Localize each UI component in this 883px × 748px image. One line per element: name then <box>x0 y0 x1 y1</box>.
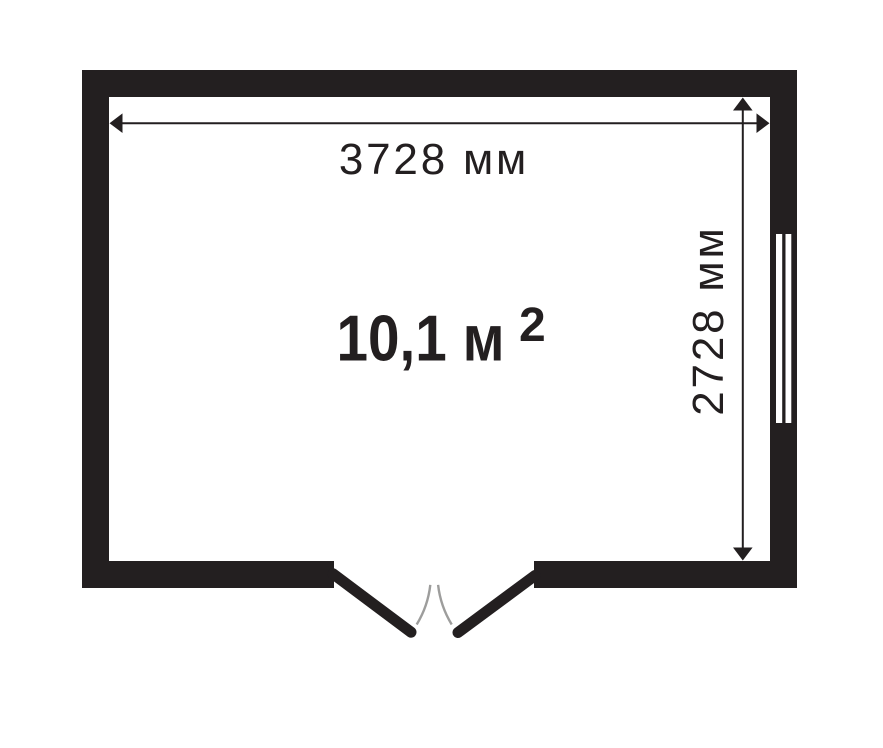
svg-text:2: 2 <box>519 299 546 352</box>
svg-text:2728 мм: 2728 мм <box>684 225 733 415</box>
svg-text:3728 мм: 3728 мм <box>339 135 529 184</box>
svg-text:10,1 м: 10,1 м <box>337 302 505 375</box>
